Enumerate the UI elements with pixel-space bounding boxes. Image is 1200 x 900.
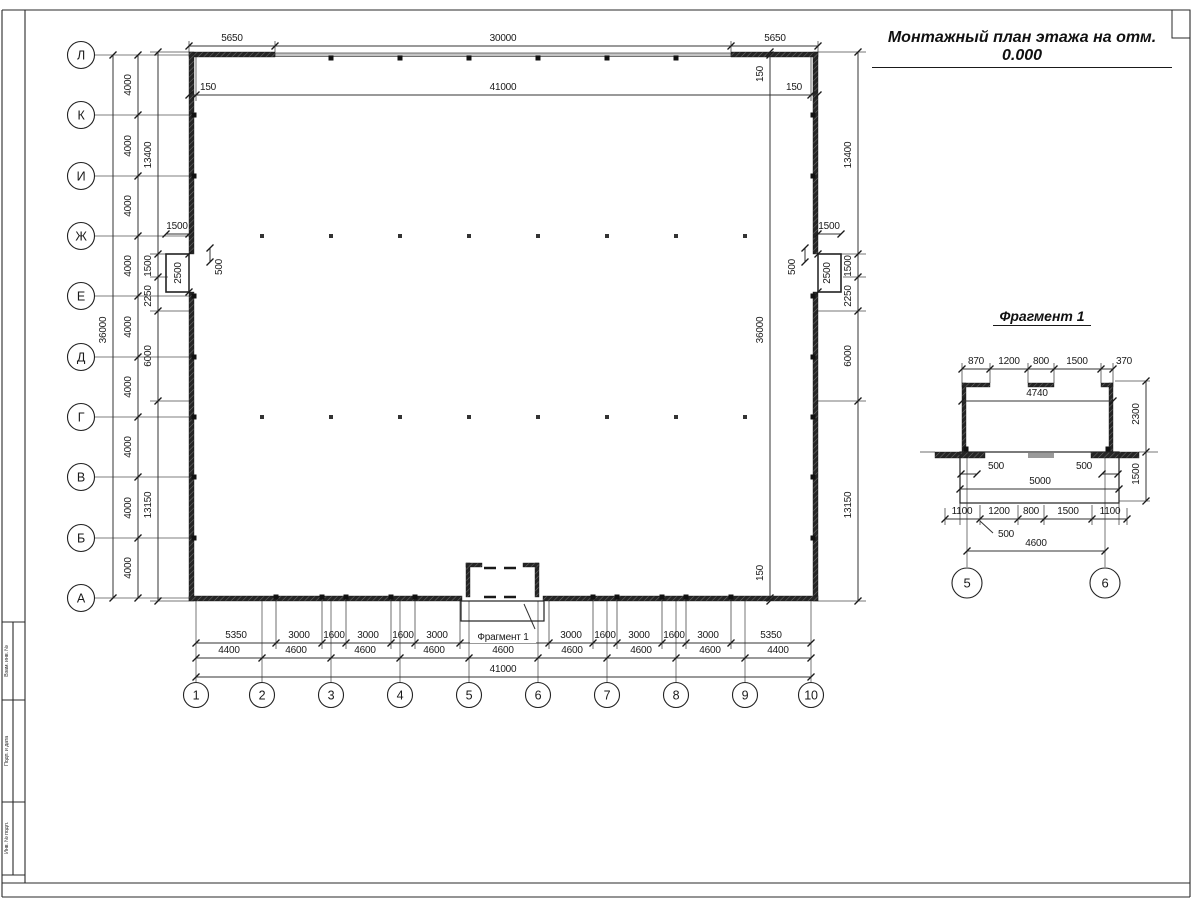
dim-label: 500 <box>1076 461 1093 472</box>
axis-label: Ж <box>75 230 87 244</box>
dim-label: 800 <box>1033 356 1050 367</box>
stamp-label: Подп. и дата <box>4 735 10 766</box>
axis-label: Е <box>77 290 85 304</box>
dim-label: 4000 <box>123 497 134 519</box>
dim-label: 150 <box>786 82 803 93</box>
column-mark <box>591 595 596 600</box>
axis-label: 8 <box>673 689 680 703</box>
wall <box>731 52 818 57</box>
axis-label: А <box>77 592 86 606</box>
wall <box>813 292 818 601</box>
dim-label: 30000 <box>490 33 517 44</box>
dim-label: 13150 <box>143 491 154 518</box>
dim-label: 2500 <box>173 262 184 284</box>
dim-label: 3000 <box>697 630 719 641</box>
dim-label: 3000 <box>628 630 650 641</box>
dim-label: 1500 <box>1057 506 1079 517</box>
column-mark <box>811 174 816 179</box>
column-mark <box>1106 447 1111 452</box>
dim-label: 4400 <box>767 645 789 656</box>
dim-label: 4600 <box>285 645 307 656</box>
dim-label: 370 <box>1116 356 1133 367</box>
dim-label: 5000 <box>1029 476 1051 487</box>
dim-label: 800 <box>1023 506 1040 517</box>
dim-label: 41000 <box>490 664 517 675</box>
column-dot <box>743 415 747 419</box>
dim-label: 1100 <box>1100 506 1121 517</box>
wall <box>523 563 539 567</box>
dim-label: 500 <box>787 258 798 275</box>
axis-label: 7 <box>604 689 611 703</box>
column-dot <box>674 415 678 419</box>
wall <box>962 383 966 452</box>
dim-label: 36000 <box>755 316 766 343</box>
axis-label: Б <box>77 532 85 546</box>
wall <box>1091 452 1139 458</box>
axis-label: Л <box>77 49 85 63</box>
wall <box>466 563 482 567</box>
column-dot <box>605 234 609 238</box>
axis-label: 6 <box>535 689 542 703</box>
dim-label: 2250 <box>843 285 854 307</box>
column-mark <box>729 595 734 600</box>
column-dot <box>260 415 264 419</box>
code-box <box>1172 10 1190 38</box>
dim-label: 3000 <box>426 630 448 641</box>
labels: Фрагмент 1500 <box>470 529 1015 643</box>
dim-label: 1500 <box>843 255 854 277</box>
dim-label: 4600 <box>423 645 445 656</box>
axis-label: Г <box>78 411 85 425</box>
dim-label: 1500 <box>1131 463 1142 485</box>
dim-label: 4400 <box>218 645 240 656</box>
dim-label: 1500 <box>1066 356 1088 367</box>
dim-label: 1200 <box>998 356 1020 367</box>
stamp-label: Взам. инв. № <box>4 645 10 677</box>
dim-label: 4000 <box>123 557 134 579</box>
fragment-title: Фрагмент 1 <box>993 308 1091 326</box>
column-dot <box>536 415 540 419</box>
dim-label: 150 <box>755 564 766 581</box>
axis-label: 6 <box>1101 576 1108 591</box>
dim-label: 150 <box>200 82 217 93</box>
dim-label: 4000 <box>123 135 134 157</box>
dim-label: 5650 <box>221 33 243 44</box>
dim-label: 1600 <box>594 630 616 641</box>
drawing-sheet: { "meta": { "title": "Монтажный план эта… <box>0 0 1200 900</box>
dim-label: 3000 <box>357 630 379 641</box>
dim-label: 41000 <box>490 82 517 93</box>
column-mark <box>811 113 816 118</box>
column-mark <box>536 56 541 61</box>
column-mark <box>389 595 394 600</box>
column-mark <box>811 294 816 299</box>
dim-label: 1600 <box>323 630 345 641</box>
column-dot <box>329 234 333 238</box>
dimensions: 5650300005650150410001501500150053503000… <box>98 33 1150 681</box>
column-mark <box>192 415 197 420</box>
dim-label: 4600 <box>561 645 583 656</box>
sheet-frame: Взам. инв. №Подп. и датаИнв. № подл. <box>2 10 1190 897</box>
dim-label: 4000 <box>123 74 134 96</box>
column-mark <box>192 536 197 541</box>
dim-label: 500 <box>214 258 225 275</box>
dim-label: 5650 <box>764 33 786 44</box>
dim-label: 2300 <box>1131 403 1142 425</box>
dim-label: 13400 <box>143 141 154 168</box>
dim-label: 36000 <box>98 316 109 343</box>
dim-label: 4600 <box>630 645 652 656</box>
dim-label: 13150 <box>843 491 854 518</box>
column-dot <box>329 415 333 419</box>
wall <box>1101 383 1113 387</box>
column-mark <box>192 294 197 299</box>
dim-label: 500 <box>998 529 1015 540</box>
column-mark <box>684 595 689 600</box>
wall <box>535 563 539 597</box>
dim-label: 6000 <box>843 345 854 367</box>
column-mark <box>274 595 279 600</box>
wall <box>1028 383 1054 387</box>
dim-label: 2250 <box>143 285 154 307</box>
dim-label: 4000 <box>123 255 134 277</box>
wall <box>189 52 275 57</box>
column-mark <box>329 56 334 61</box>
outline <box>461 601 544 621</box>
axis-label: 2 <box>259 689 266 703</box>
pier <box>1028 453 1054 458</box>
wall <box>962 383 990 387</box>
page-title: Монтажный план этажа на отм. 0.000 <box>872 29 1172 68</box>
dim-label: 3000 <box>560 630 582 641</box>
axis-label: 1 <box>193 689 200 703</box>
wall <box>189 596 462 601</box>
axis-label: 4 <box>397 689 404 703</box>
wall <box>189 292 194 601</box>
dim-label: 4740 <box>1026 388 1048 399</box>
wall <box>466 563 470 597</box>
axis-label: К <box>77 109 85 123</box>
axis-label: 3 <box>328 689 335 703</box>
dim-label: 5350 <box>760 630 782 641</box>
dim-label: 150 <box>755 65 766 82</box>
dim-label: 13400 <box>843 141 854 168</box>
dim-label: 3000 <box>288 630 310 641</box>
column-dot <box>398 234 402 238</box>
column-dot <box>398 415 402 419</box>
column-mark <box>605 56 610 61</box>
column-mark <box>615 595 620 600</box>
axis-label: 5 <box>466 689 473 703</box>
dim-label: 4600 <box>354 645 376 656</box>
column-mark <box>413 595 418 600</box>
column-mark <box>192 174 197 179</box>
drawing-canvas: Взам. инв. №Подп. и датаИнв. № подл.5650… <box>0 0 1200 900</box>
leader-line <box>980 521 993 533</box>
dim-label: 1100 <box>952 506 973 517</box>
dim-label: 1600 <box>663 630 685 641</box>
dim-label: 4000 <box>123 316 134 338</box>
column-dot <box>743 234 747 238</box>
column-mark <box>964 447 969 452</box>
column-mark <box>344 595 349 600</box>
dim-label: 4600 <box>699 645 721 656</box>
wall <box>543 596 818 601</box>
dim-label: 4000 <box>123 376 134 398</box>
column-mark <box>467 56 472 61</box>
dim-label: 1600 <box>392 630 414 641</box>
column-mark <box>811 475 816 480</box>
leader-line <box>524 604 535 629</box>
dim-label: 1500 <box>166 221 188 232</box>
column-dot <box>467 415 471 419</box>
column-mark <box>192 355 197 360</box>
dim-label: 1200 <box>988 506 1010 517</box>
dim-label: 2500 <box>822 262 833 284</box>
column-mark <box>398 56 403 61</box>
axis-label: 9 <box>742 689 749 703</box>
column-mark <box>660 595 665 600</box>
axis-label: В <box>77 471 85 485</box>
dim-label: 4600 <box>492 645 514 656</box>
column-mark <box>811 415 816 420</box>
dim-label: 1500 <box>818 221 840 232</box>
wall <box>189 52 194 254</box>
axis-label: Д <box>77 351 86 365</box>
dim-label: 4000 <box>123 436 134 458</box>
column-mark <box>811 536 816 541</box>
dim-label: 500 <box>988 461 1005 472</box>
axis-label: 10 <box>804 689 818 703</box>
dim-label: 1500 <box>143 255 154 277</box>
column-mark <box>674 56 679 61</box>
fragment-ref-label: Фрагмент 1 <box>477 632 529 643</box>
axis-label: И <box>77 170 86 184</box>
column-dot <box>260 234 264 238</box>
stamp-label: Инв. № подл. <box>4 821 10 854</box>
column-dot <box>605 415 609 419</box>
column-mark <box>320 595 325 600</box>
column-dot <box>674 234 678 238</box>
dim-label: 5350 <box>225 630 247 641</box>
axis-label: 5 <box>963 576 970 591</box>
wall-thin <box>275 53 731 57</box>
column-mark <box>192 113 197 118</box>
column-mark <box>811 355 816 360</box>
wall <box>813 52 818 254</box>
dim-label: 6000 <box>143 345 154 367</box>
column-mark <box>192 475 197 480</box>
plan-geometry <box>166 52 1139 621</box>
dim-label: 4000 <box>123 195 134 217</box>
wall <box>1109 383 1113 452</box>
column-dot <box>536 234 540 238</box>
dim-label: 4600 <box>1025 538 1047 549</box>
dim-label: 870 <box>968 356 985 367</box>
column-dot <box>467 234 471 238</box>
